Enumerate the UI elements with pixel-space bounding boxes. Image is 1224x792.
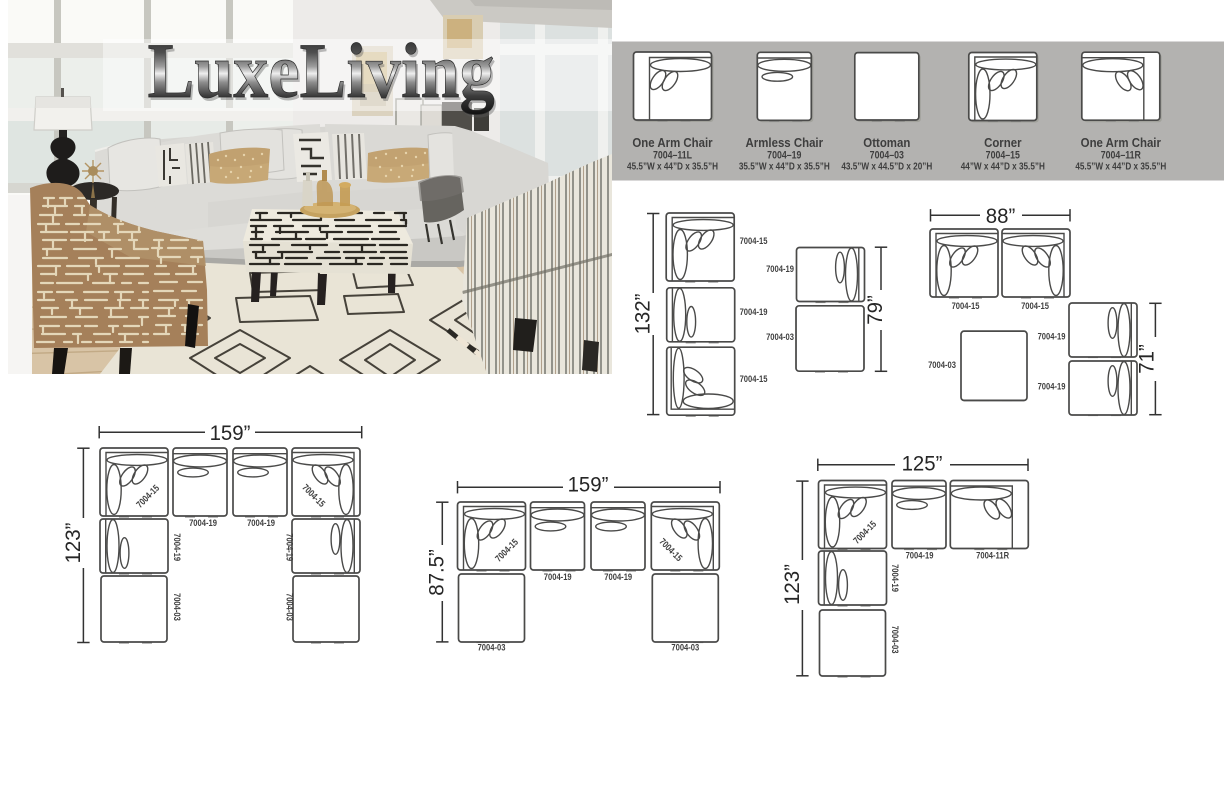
- svg-text:123”: 123”: [62, 523, 86, 564]
- svg-text:7004-03: 7004-03: [890, 626, 901, 654]
- svg-text:159”: 159”: [210, 422, 251, 446]
- svg-text:79”: 79”: [864, 295, 888, 325]
- svg-text:Ottoman: Ottoman: [863, 135, 910, 150]
- svg-text:7004-19: 7004-19: [544, 571, 572, 582]
- svg-text:7004-11R: 7004-11R: [976, 550, 1010, 561]
- svg-text:7004-19: 7004-19: [284, 533, 295, 561]
- svg-text:7004-19: 7004-19: [172, 533, 183, 561]
- svg-text:7004-19: 7004-19: [740, 306, 768, 317]
- svg-text:LuxeLiving: LuxeLiving: [147, 29, 494, 115]
- svg-text:7004-15: 7004-15: [952, 300, 980, 311]
- svg-text:One Arm Chair: One Arm Chair: [1081, 135, 1161, 150]
- svg-text:7004-15: 7004-15: [740, 373, 768, 384]
- svg-text:87.5”: 87.5”: [425, 549, 449, 596]
- svg-text:132”: 132”: [631, 294, 655, 335]
- svg-text:7004-19: 7004-19: [604, 571, 632, 582]
- svg-text:7004-19: 7004-19: [1038, 381, 1066, 392]
- svg-text:159”: 159”: [568, 473, 609, 497]
- svg-text:45.5”W x 44”D x 35.5”H: 45.5”W x 44”D x 35.5”H: [627, 159, 718, 171]
- svg-text:7004-03: 7004-03: [766, 331, 794, 342]
- svg-text:123”: 123”: [781, 564, 805, 605]
- svg-text:43.5”W x 44.5”D x 20”H: 43.5”W x 44.5”D x 20”H: [841, 159, 932, 171]
- svg-text:7004-03: 7004-03: [284, 593, 295, 621]
- svg-text:One Arm Chair: One Arm Chair: [632, 135, 712, 150]
- svg-text:7004-19: 7004-19: [906, 550, 934, 561]
- svg-text:44”W x 44”D x 35.5”H: 44”W x 44”D x 35.5”H: [961, 159, 1045, 171]
- svg-text:7004-19: 7004-19: [766, 263, 794, 274]
- svg-text:7004-19: 7004-19: [890, 564, 901, 592]
- svg-text:7004-03: 7004-03: [172, 593, 183, 621]
- svg-text:7004-19: 7004-19: [247, 517, 275, 528]
- svg-text:7004-03: 7004-03: [478, 642, 506, 653]
- svg-text:7004-15: 7004-15: [740, 235, 768, 246]
- svg-text:88”: 88”: [986, 205, 1016, 229]
- svg-text:125”: 125”: [902, 452, 943, 476]
- svg-text:71”: 71”: [1135, 344, 1159, 374]
- svg-text:7004-19: 7004-19: [1038, 331, 1066, 342]
- svg-text:35.5”W x 44”D x 35.5”H: 35.5”W x 44”D x 35.5”H: [739, 159, 830, 171]
- svg-text:7004-15: 7004-15: [1021, 300, 1049, 311]
- svg-text:7004-03: 7004-03: [671, 642, 699, 653]
- svg-text:Armless Chair: Armless Chair: [746, 135, 824, 150]
- svg-text:7004-19: 7004-19: [189, 517, 217, 528]
- svg-text:Corner: Corner: [984, 135, 1022, 150]
- svg-text:7004-03: 7004-03: [928, 359, 956, 370]
- svg-text:45.5”W x 44”D x 35.5”H: 45.5”W x 44”D x 35.5”H: [1075, 159, 1166, 171]
